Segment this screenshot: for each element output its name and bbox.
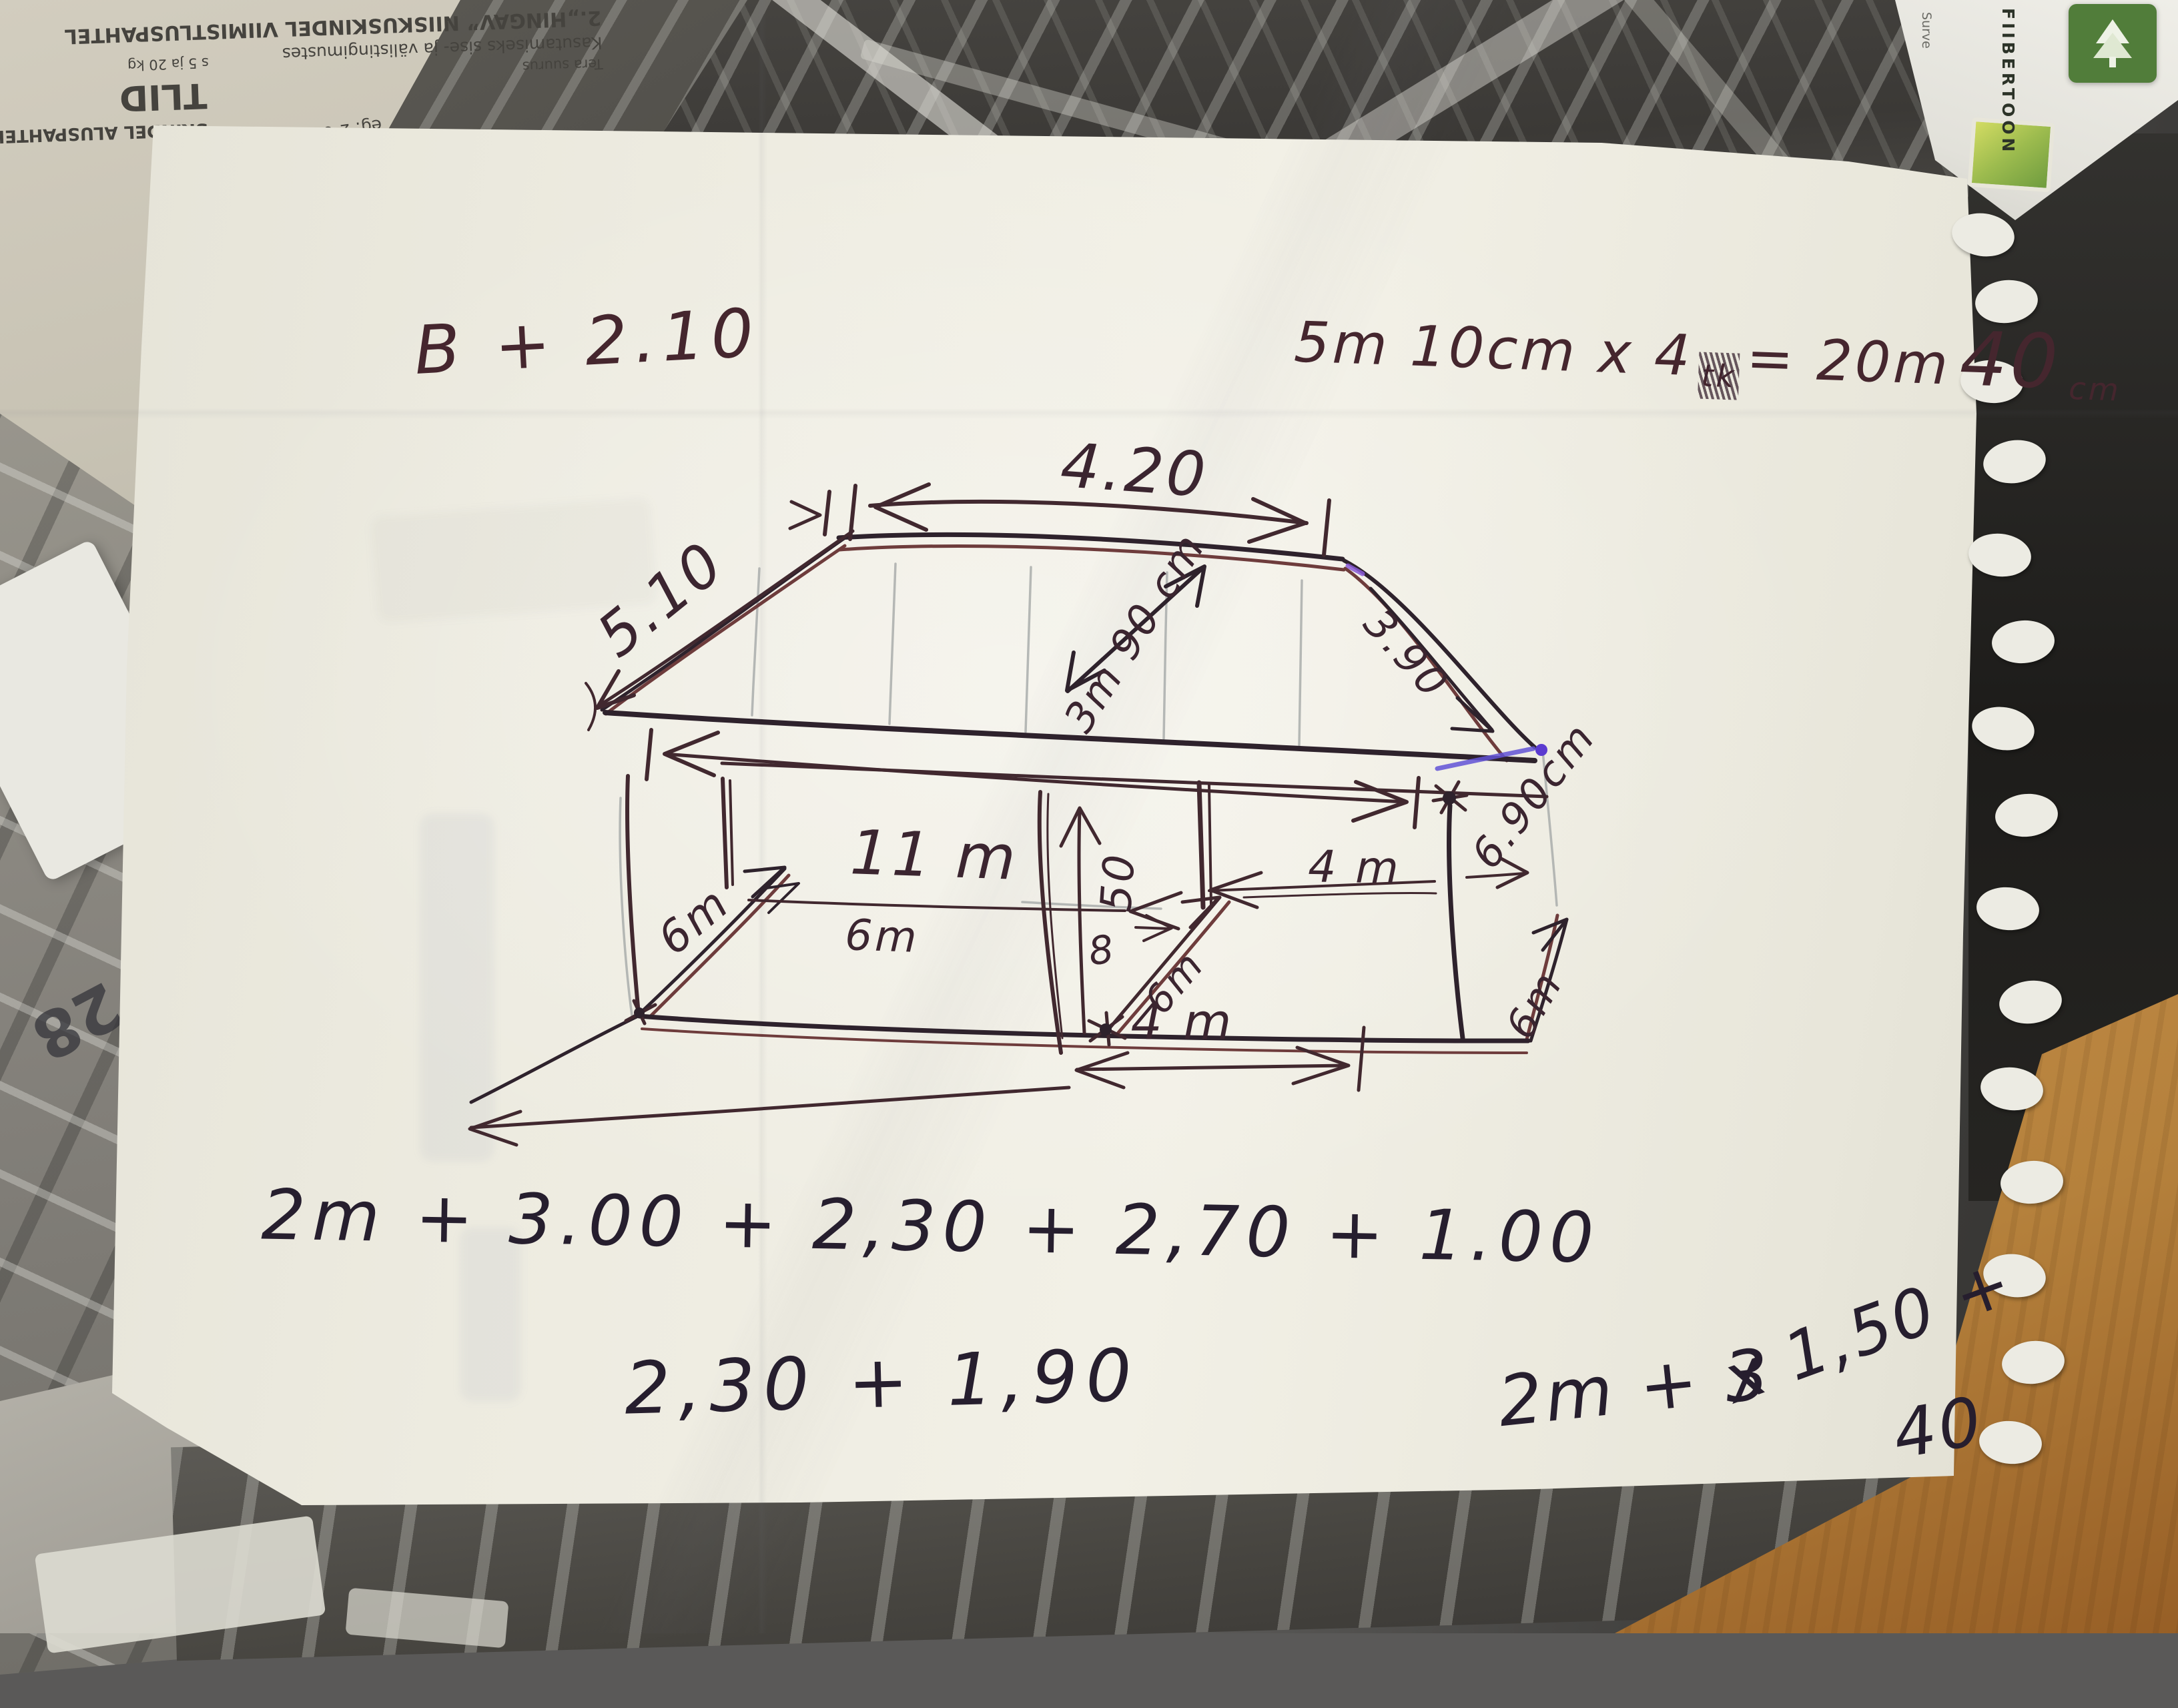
dim-front-length: 11 m: [849, 817, 1020, 894]
brand-name-vertical: FIIBERTOON: [1999, 8, 2018, 155]
note-scratched: tk: [1701, 358, 1738, 395]
dim-center-height: 50: [1092, 851, 1145, 913]
note-lhs: 5m 10cm x 4: [1293, 309, 1694, 388]
brochure-weight-text: s 5 ja 20 kg: [127, 55, 210, 73]
tree-icon: [2089, 17, 2136, 70]
brand-badge: [2069, 4, 2157, 83]
dim-ridge-top: 4.20: [1058, 430, 1210, 511]
dim-bottom-span: 4 m: [1131, 993, 1234, 1051]
showthrough-smudge: [420, 814, 494, 1161]
equation-line-3c: 40: [1887, 1382, 1990, 1474]
desk-photo: 2.„HINGAV” NIISKUSKINDEL VIIMISTLUSPAHTE…: [0, 0, 2178, 1633]
brochure-weight-note: s 5 ja 20 kg: [127, 55, 210, 73]
dim-mid-span: 6m: [844, 911, 920, 963]
equation-line-2: 2,30 + 1,90: [623, 1334, 1140, 1430]
note-result: 40: [1958, 316, 2062, 406]
note-equals: = 20m: [1746, 325, 1952, 398]
note-unit: cm: [2069, 370, 2122, 408]
brochure-fragment-big: TLID: [0, 75, 208, 122]
brand-small-text: Surve: [1919, 12, 1934, 49]
dim-right-span: 4 m: [1308, 841, 1402, 893]
